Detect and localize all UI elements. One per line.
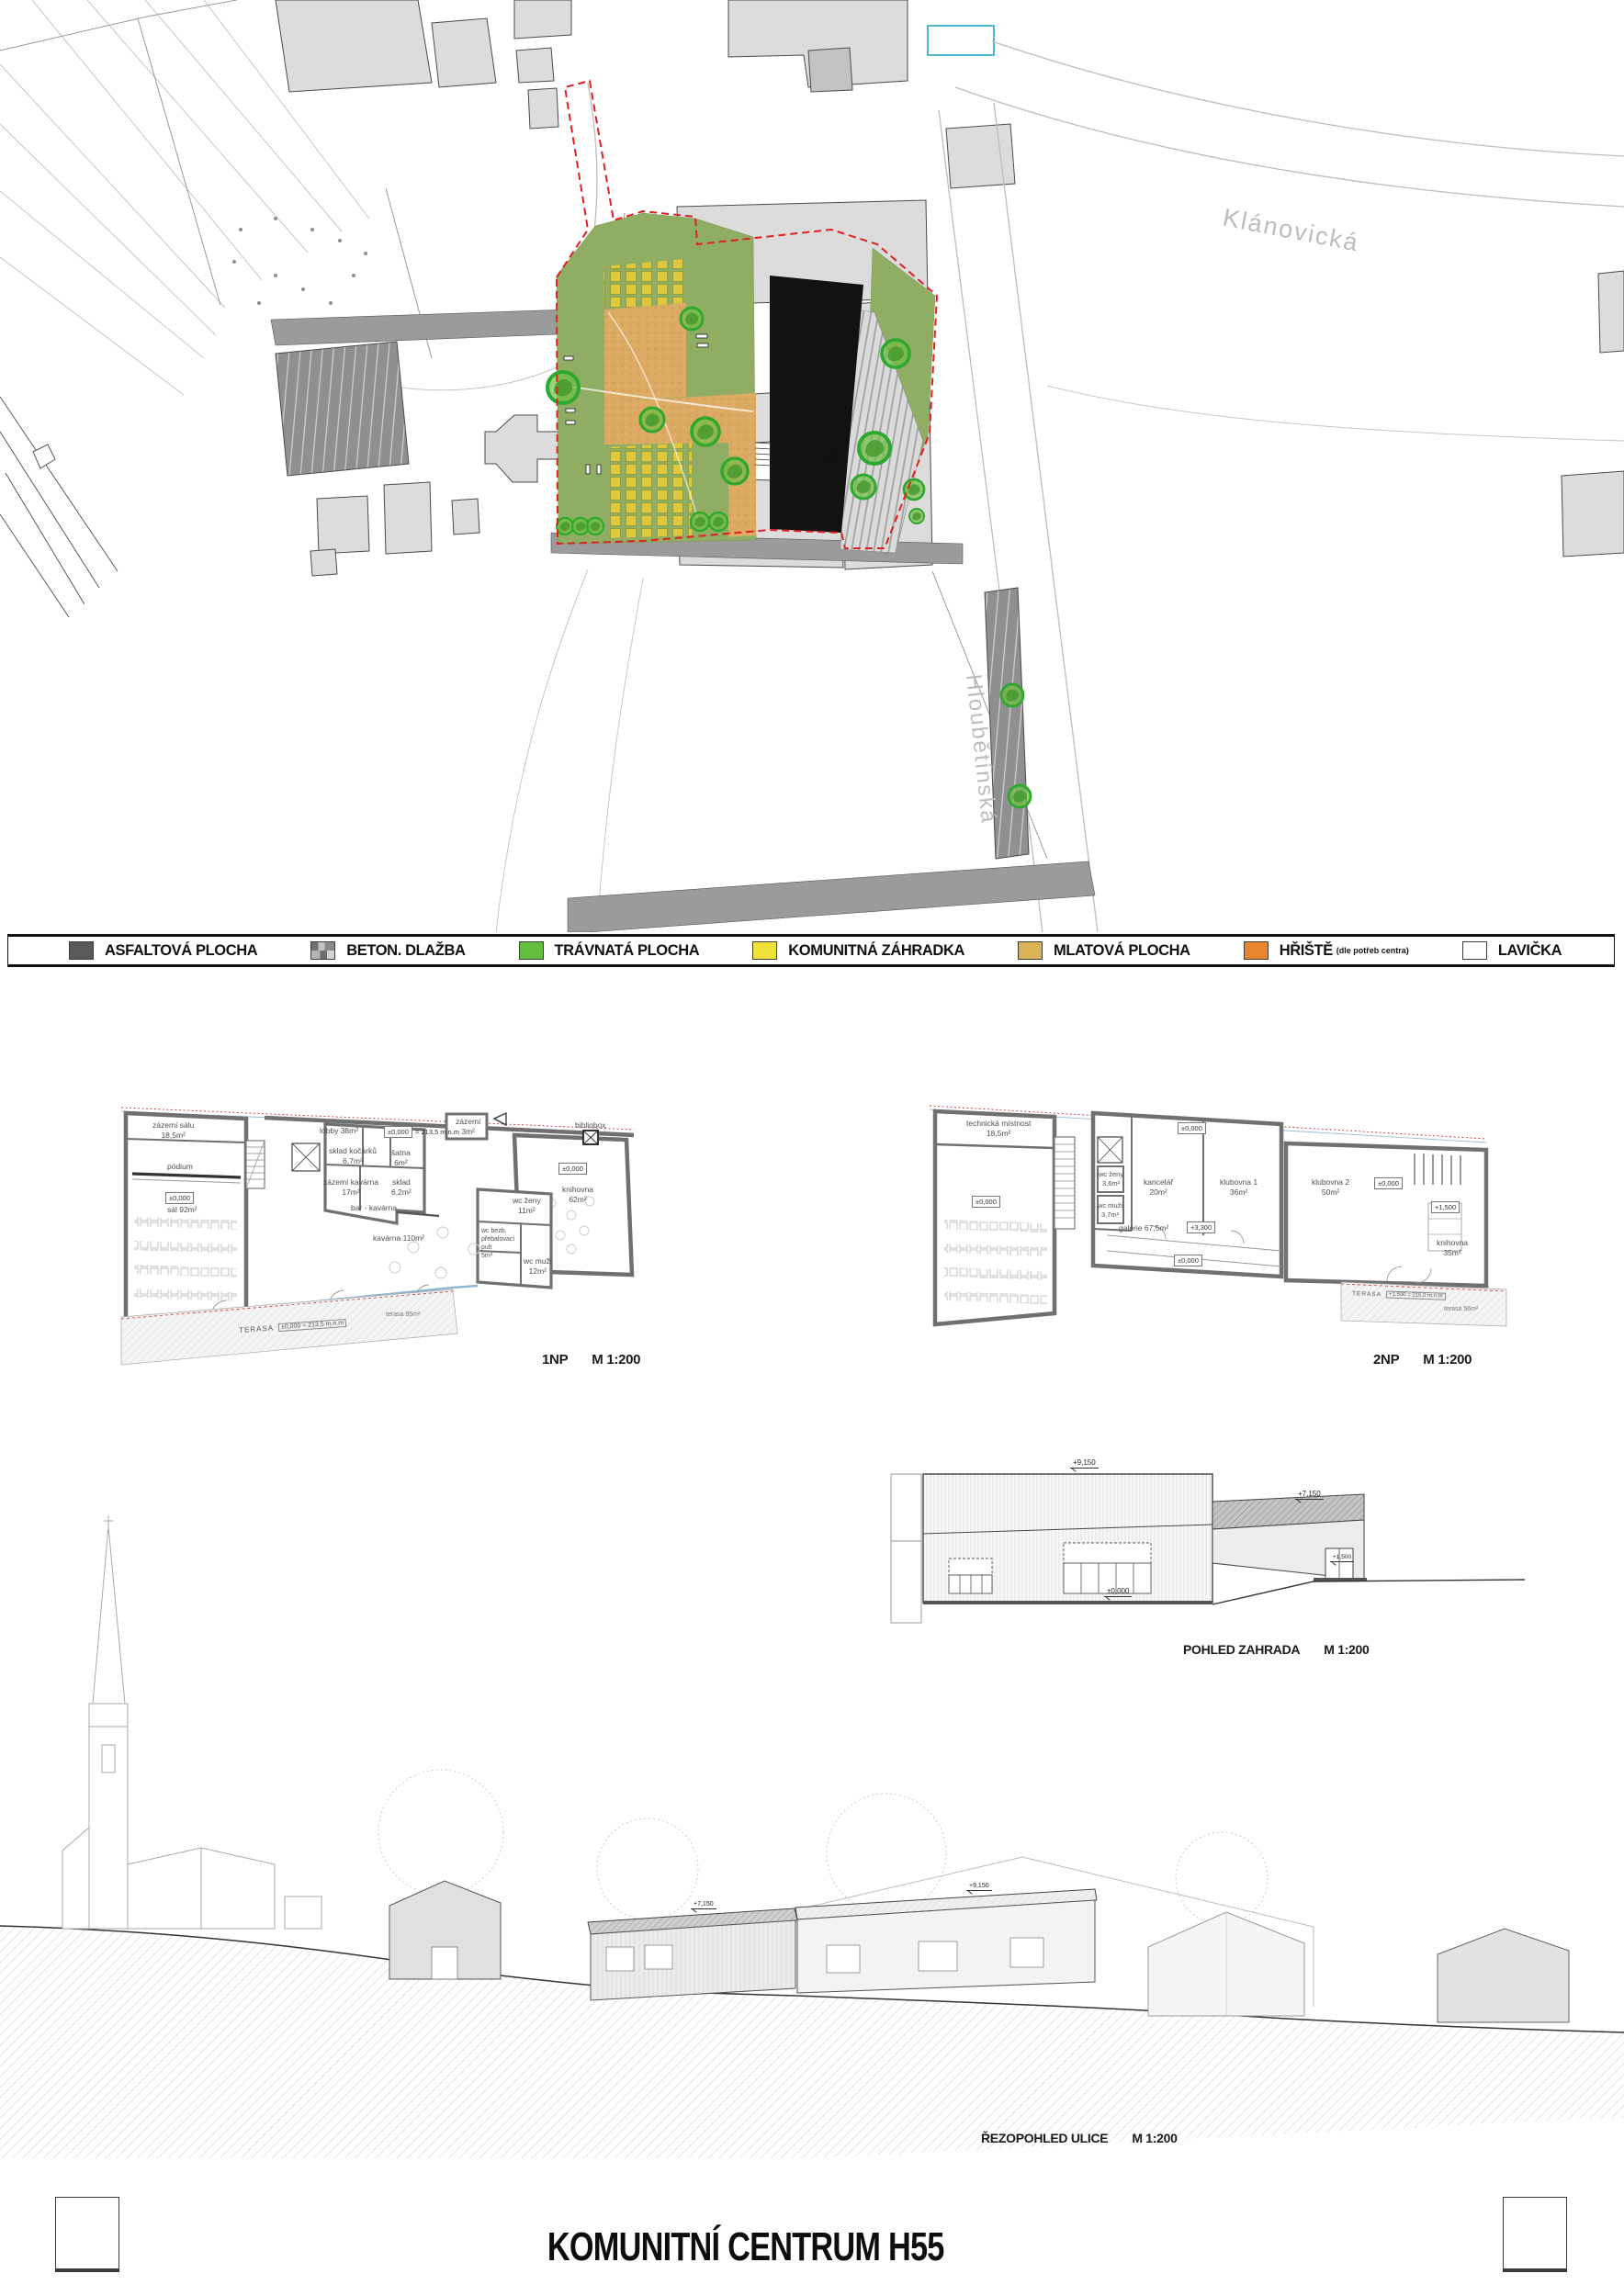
room-label: kancelář 20m² [1144,1177,1173,1198]
street-section: +7,150 +9,150 ŘEZOPOHLED ULICEM 1:200 [0,1515,1624,2158]
room-label: pódium [167,1162,193,1172]
level-mark-row: ±0,000 = 213,5 m.n.m [384,1126,459,1138]
room-label: lobby 38m² [320,1126,358,1136]
elevation-mark: +7,150 [691,1901,716,1909]
room-label: wc muži 3,7m² [1098,1201,1122,1220]
room-label: bar - kavárna [351,1203,397,1213]
legend-item-zahradka: KOMUNITNÁ ZÁHRADKA [752,941,964,960]
legend-drawing-name: SITUACE M 1:500 [1615,933,1624,968]
room-label: wc ženy 11m² [513,1196,541,1216]
room-label: knihovna 35m² [1437,1238,1468,1258]
legend-label: HŘIŠTĚ [1280,942,1333,960]
playground-swatch [1244,941,1269,960]
level-mark: ±0,000 [1178,1122,1206,1134]
garden-elevation-caption: POHLED ZAHRADAM 1:200 [1183,1642,1370,1657]
garden-beds-north [603,259,686,310]
legend-sublabel: (dle potřeb centra) [1336,946,1409,955]
room-label: wc bezb. přebalovací pult 5m² [481,1227,514,1260]
level-suffix: = 213,5 m.n.m [415,1128,459,1136]
grass-swatch [519,941,544,960]
title-block-box-right [1503,2197,1567,2272]
room-label: bibliobox [575,1120,606,1131]
room-label: klubovna 2 50m² [1312,1177,1349,1198]
building-low [588,1908,797,2000]
legend-item-mlat: MLATOVÁ PLOCHA [1018,941,1190,960]
house-far-right [1438,1929,1569,2022]
legend-label: ASFALTOVÁ PLOCHA [105,942,257,960]
level-mark: ±0,000 [165,1192,194,1204]
site-plan-map: Klánovická Hloubětínská [0,0,1624,932]
terasa-area: terasa 95m² [386,1311,420,1318]
room-label: sál 92m² [167,1205,197,1215]
level-mark: ±0,000 [972,1196,1000,1208]
garden-swatch [752,941,777,960]
concrete-swatch [310,941,335,960]
room-label: klubovna 1 36m² [1220,1177,1257,1198]
room-label: knihovna 62m² [562,1185,593,1205]
level-mark: ±0,000 [558,1163,587,1175]
terasa-area: terasa 56m² [1444,1306,1478,1312]
legend-item-asfalt: ASFALTOVÁ PLOCHA [69,941,257,960]
elevation-mark: ±0,000 [1104,1587,1132,1597]
legend-item-beton: BETON. DLAŽBA [310,941,465,960]
church-section [62,1515,321,1929]
presentation-sheet: Klánovická Hloubětínská ASFALTOVÁ PLOCHA… [0,0,1624,2296]
legend-item-trava: TRÁVNATÁ PLOCHA [519,941,700,960]
legend-label: KOMUNITNÁ ZÁHRADKA [788,942,964,960]
mlat-area [604,303,686,402]
room-label: wc ženy 3,6m² [1099,1170,1123,1188]
room-label: wc muži 12m² [524,1256,552,1277]
legend-label: BETON. DLAŽBA [346,942,465,960]
house-small [389,1881,501,1979]
elevation-mark: +7,150 [1295,1490,1324,1500]
garden-beds-south [606,443,692,538]
level-mark: ±0,000 [1374,1177,1403,1189]
room-label: zázemí sálu 18,5m² [152,1120,194,1141]
plan-1np-caption: 1NPM 1:200 [542,1352,640,1367]
elevation-mark: +9,150 [966,1883,992,1891]
floor-plan-2np: technická místnost 18,5m² ±0,000 ±0,000 … [919,1093,1525,1379]
legend-bar: ASFALTOVÁ PLOCHA BETON. DLAŽBA TRÁVNATÁ … [7,934,1615,967]
room-label: technická místnost 18,5m² [966,1119,1031,1139]
plan-2np-caption: 2NPM 1:200 [1373,1352,1472,1367]
elevation-mark: +1,500 [1330,1554,1354,1562]
street-section-drawing [0,1515,1624,2158]
legend-label: MLATOVÁ PLOCHA [1054,942,1190,960]
room-label: zázemí 3m² [456,1117,480,1137]
sheet-title: KOMUNITNÍ CENTRUM H55 [0,2224,1492,2270]
floor-plan-1np: zázemí sálu 18,5m² pódium ±0,000 sál 92m… [119,1093,726,1379]
building-main [795,1889,1097,1993]
room-label: zázemí kavárna 17m² [323,1177,378,1198]
room-label: galerie 67,5m² [1119,1223,1168,1233]
legend-label: LAVIČKA [1498,942,1562,960]
room-label: šatna 6m² [391,1148,411,1168]
room-label: sklad kočárků 6,7m² [329,1146,377,1166]
level-mark: ±0,000 [384,1126,412,1138]
legend-item-lavicka: LAVIČKA [1462,941,1562,960]
elevation-mark: +9,150 [1070,1458,1099,1469]
parking-west [276,342,409,476]
street-section-caption: ŘEZOPOHLED ULICEM 1:200 [981,2131,1178,2145]
community-garden [557,213,756,544]
level-mark: ±0,000 [1174,1255,1202,1266]
bench-swatch [1462,941,1487,960]
background-trees [378,1770,1268,1924]
room-label: kavárna 110m² [373,1233,424,1244]
mlat-swatch [1018,941,1043,960]
level-mark: +3,300 [1187,1221,1215,1233]
level-mark: +1,500 [1431,1201,1460,1213]
legend-label: TRÁVNATÁ PLOCHA [555,942,700,960]
house-right-outline [1148,1912,1304,2016]
asphalt-swatch [69,941,94,960]
legend-item-hriste: HŘIŠTĚ (dle potřeb centra) [1244,941,1409,960]
room-label: sklad 6,2m² [391,1177,412,1198]
